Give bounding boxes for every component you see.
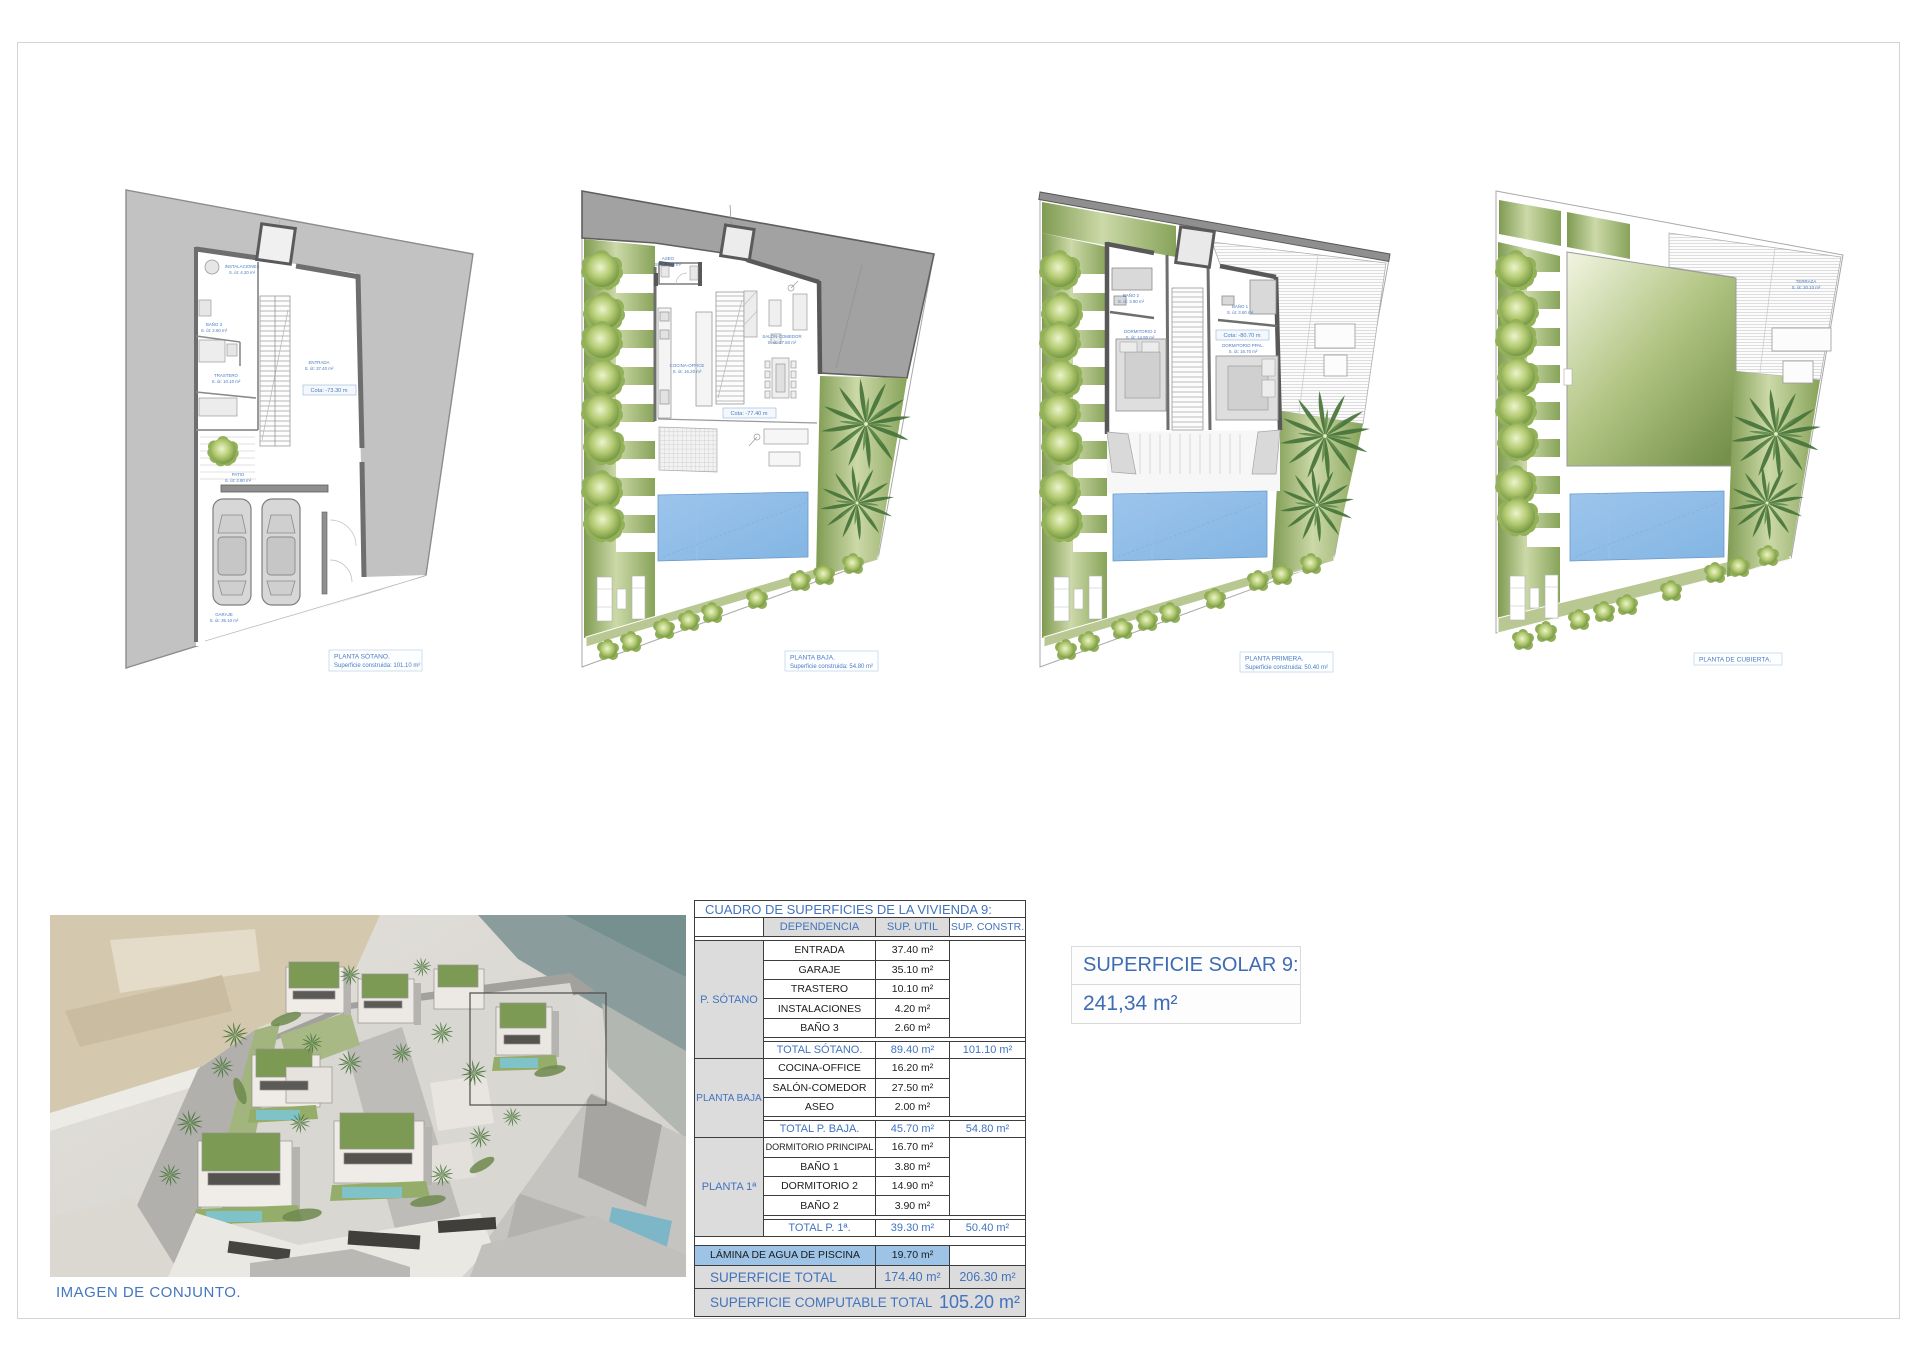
svg-text:S. út: 14.90 m²: S. út: 14.90 m²: [1126, 335, 1155, 340]
svg-text:Cota: -73.30 m: Cota: -73.30 m: [311, 388, 348, 394]
svg-text:ASEO: ASEO: [662, 256, 675, 261]
svg-text:BAÑO 2: BAÑO 2: [1123, 293, 1140, 298]
svg-text:TRASTERO: TRASTERO: [214, 373, 238, 378]
svg-text:S. út: 3.90 m²: S. út: 3.90 m²: [1118, 299, 1145, 304]
svg-text:S. út: 16.70 m²: S. út: 16.70 m²: [1229, 349, 1258, 354]
svg-text:GARAJE: GARAJE: [215, 612, 233, 617]
svg-text:PLANTA PRIMERA.: PLANTA PRIMERA.: [1245, 656, 1304, 663]
svg-text:S. út: 3.80 m²: S. út: 3.80 m²: [1227, 310, 1254, 315]
svg-text:Superficie construida: 101.10: Superficie construida: 101.10 m²: [334, 663, 420, 669]
svg-text:S. út: 4.20 m²: S. út: 4.20 m²: [229, 270, 256, 275]
svg-text:SALÓN-COMEDOR: SALÓN-COMEDOR: [762, 334, 801, 339]
svg-text:Superficie construida: 54.80 m: Superficie construida: 54.80 m²: [790, 664, 873, 670]
svg-text:S. út: 2.00 m²: S. út: 2.00 m²: [655, 262, 682, 267]
svg-text:DORMITORIO 2: DORMITORIO 2: [1124, 329, 1157, 334]
svg-text:PLANTA BAJA.: PLANTA BAJA.: [790, 655, 835, 662]
svg-text:BAÑO 1: BAÑO 1: [1232, 304, 1249, 309]
svg-text:DORMITORIO PPAL.: DORMITORIO PPAL.: [1222, 343, 1264, 348]
svg-text:ENTRADA: ENTRADA: [309, 360, 330, 365]
svg-text:COCINA-OFFICE: COCINA-OFFICE: [670, 363, 705, 368]
svg-text:S. út: 35.10 m²: S. út: 35.10 m²: [210, 618, 239, 623]
svg-text:TERRAZA: TERRAZA: [1796, 279, 1817, 284]
svg-text:S. út: 10.10 m²: S. út: 10.10 m²: [212, 379, 241, 384]
svg-text:PLANTA SÓTANO.: PLANTA SÓTANO.: [334, 652, 390, 661]
svg-text:S. út: 27.50 m²: S. út: 27.50 m²: [768, 340, 797, 345]
svg-text:S. út: 37.40 m²: S. út: 37.40 m²: [305, 366, 334, 371]
svg-text:Cota: -77.40 m: Cota: -77.40 m: [731, 411, 768, 417]
svg-text:PATIO: PATIO: [232, 472, 245, 477]
svg-text:S. út: 2.60 m²: S. út: 2.60 m²: [201, 328, 228, 333]
svg-text:S. út: 3.80 m²: S. út: 3.80 m²: [225, 478, 252, 483]
svg-text:PLANTA DE CUBIERTA.: PLANTA DE CUBIERTA.: [1699, 657, 1771, 664]
svg-text:S. út: 20.10 m²: S. út: 20.10 m²: [1792, 285, 1821, 290]
svg-text:BAÑO 3: BAÑO 3: [206, 322, 223, 327]
svg-text:Cota: -80.70 m: Cota: -80.70 m: [1224, 333, 1261, 339]
svg-text:INSTALACIONES: INSTALACIONES: [225, 264, 260, 269]
svg-text:Superficie construida: 50.40 m: Superficie construida: 50.40 m²: [1245, 665, 1328, 671]
svg-text:S. út: 16.20 m²: S. út: 16.20 m²: [673, 369, 702, 374]
